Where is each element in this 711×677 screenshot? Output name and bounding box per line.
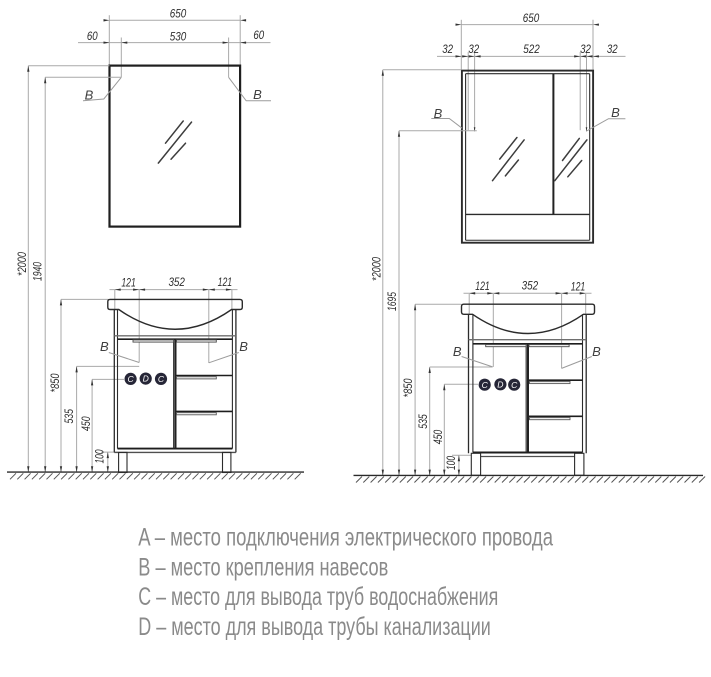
svg-text:352: 352 — [522, 279, 539, 293]
svg-text:*2000: *2000 — [16, 252, 29, 276]
svg-text:100: 100 — [445, 456, 458, 470]
svg-text:C: C — [511, 380, 518, 390]
svg-text:D: D — [143, 374, 149, 384]
svg-text:535: 535 — [417, 414, 430, 429]
svg-text:32: 32 — [442, 42, 453, 56]
svg-text:450: 450 — [80, 416, 93, 431]
svg-text:121: 121 — [571, 279, 586, 293]
svg-text:121: 121 — [121, 275, 136, 289]
svg-text:B: B — [611, 105, 620, 120]
svg-text:1695: 1695 — [386, 292, 399, 311]
svg-text:60: 60 — [87, 29, 98, 43]
svg-text:650: 650 — [170, 7, 187, 21]
svg-text:32: 32 — [468, 42, 479, 56]
svg-text:*850: *850 — [402, 378, 415, 397]
svg-text:32: 32 — [580, 42, 591, 56]
svg-text:100: 100 — [94, 449, 107, 463]
svg-text:D – место для вывода трубы кан: D – место для вывода трубы канализации — [138, 613, 491, 641]
svg-text:B: B — [453, 344, 462, 359]
svg-text:B: B — [100, 339, 109, 354]
svg-text:121: 121 — [218, 275, 233, 289]
svg-text:530: 530 — [170, 30, 187, 44]
svg-text:B: B — [85, 88, 94, 103]
svg-text:*2000: *2000 — [370, 257, 383, 281]
svg-text:C: C — [482, 380, 489, 390]
svg-text:1940: 1940 — [32, 262, 45, 281]
svg-text:60: 60 — [253, 28, 264, 42]
svg-text:450: 450 — [432, 429, 445, 444]
svg-text:650: 650 — [523, 11, 540, 25]
svg-text:352: 352 — [168, 275, 185, 289]
svg-text:B: B — [253, 87, 262, 102]
svg-text:D: D — [497, 379, 503, 389]
svg-text:*850: *850 — [49, 373, 62, 392]
svg-text:C: C — [158, 374, 165, 384]
svg-text:C: C — [127, 374, 134, 384]
svg-text:121: 121 — [475, 279, 490, 293]
svg-text:535: 535 — [63, 409, 76, 424]
svg-text:B – место крепления навесов: B – место крепления навесов — [138, 553, 388, 581]
svg-text:A – место подключения электрич: A – место подключения электрического про… — [138, 524, 553, 552]
svg-text:B: B — [592, 344, 601, 359]
svg-text:C – место для вывода труб водо: C – место для вывода труб водоснабжения — [138, 583, 498, 611]
svg-text:522: 522 — [523, 42, 540, 56]
svg-text:32: 32 — [607, 42, 618, 56]
svg-text:B: B — [239, 339, 248, 354]
